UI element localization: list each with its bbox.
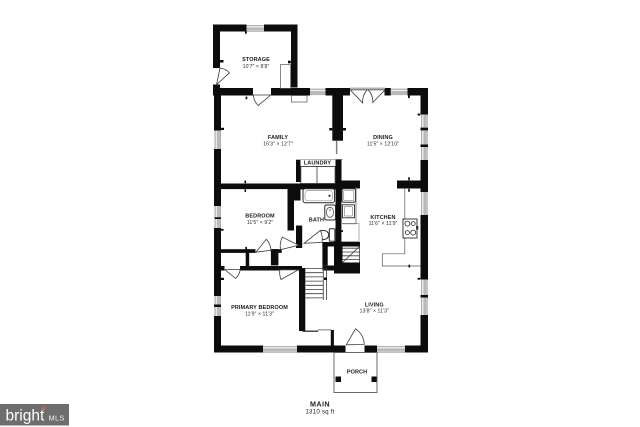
svg-text:✱: ✱ bbox=[41, 406, 46, 413]
svg-text:PRIMARY BEDROOM: PRIMARY BEDROOM bbox=[231, 305, 288, 311]
svg-text:11′9″ × 11′3″: 11′9″ × 11′3″ bbox=[245, 311, 274, 317]
svg-text:LAUNDRY: LAUNDRY bbox=[304, 160, 332, 166]
svg-text:1310 sq ft: 1310 sq ft bbox=[305, 409, 334, 416]
svg-text:11′5″ × 9′2″: 11′5″ × 9′2″ bbox=[247, 220, 273, 226]
svg-text:BEDROOM: BEDROOM bbox=[245, 214, 275, 220]
svg-text:bright: bright bbox=[6, 408, 45, 425]
svg-text:STORAGE: STORAGE bbox=[242, 57, 270, 63]
svg-text:16′3″ × 12′7″: 16′3″ × 12′7″ bbox=[263, 142, 293, 148]
svg-text:MAIN: MAIN bbox=[310, 400, 330, 409]
svg-text:13′8″ × 11′3″: 13′8″ × 11′3″ bbox=[360, 308, 389, 314]
svg-text:DINING: DINING bbox=[373, 135, 393, 141]
svg-text:11′6″ × 11′9″: 11′6″ × 11′9″ bbox=[369, 221, 398, 227]
svg-text:10′7″ × 8′8″: 10′7″ × 8′8″ bbox=[243, 64, 270, 70]
svg-text:PORCH: PORCH bbox=[347, 370, 367, 376]
svg-text:MLS: MLS bbox=[49, 413, 65, 422]
svg-text:BATH: BATH bbox=[309, 218, 324, 224]
svg-text:11′5″ × 12′10″: 11′5″ × 12′10″ bbox=[367, 142, 399, 148]
svg-text:FAMILY: FAMILY bbox=[268, 135, 288, 141]
